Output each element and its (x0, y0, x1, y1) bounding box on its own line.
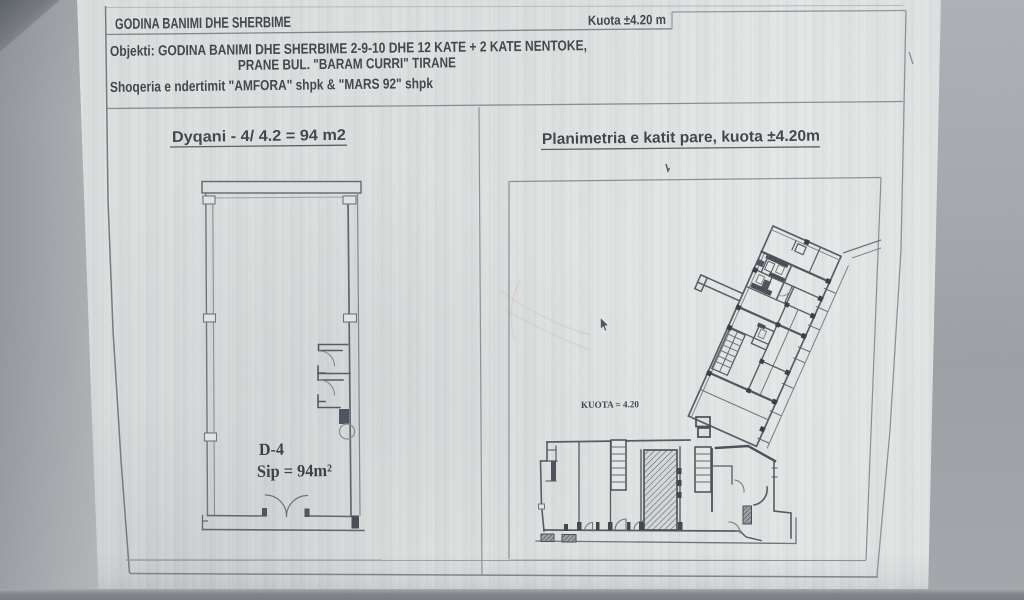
svg-text:Dyqani - 4/ 4.2 = 94 m2: Dyqani - 4/ 4.2 = 94 m2 (172, 127, 346, 146)
svg-text:Shoqeria e ndertimit "AMFORA": Shoqeria e ndertimit "AMFORA" shpk & "MA… (110, 76, 434, 96)
svg-text:Kuota ±4.20 m: Kuota ±4.20 m (588, 12, 666, 28)
svg-text:KUOTA = 4.20: KUOTA = 4.20 (581, 400, 639, 411)
svg-text:Sip = 94m²: Sip = 94m² (257, 460, 332, 481)
svg-text:Planimetria e katit pare, kuot: Planimetria e katit pare, kuota ±4.20m (542, 128, 820, 148)
svg-text:D-4: D-4 (259, 440, 285, 459)
svg-text:PRANE BUL. "BARAM CURRI" TIRAN: PRANE BUL. "BARAM CURRI" TIRANE (238, 55, 456, 74)
svg-text:GODINA BANIMI DHE SHERBIME: GODINA BANIMI DHE SHERBIME (115, 14, 291, 33)
